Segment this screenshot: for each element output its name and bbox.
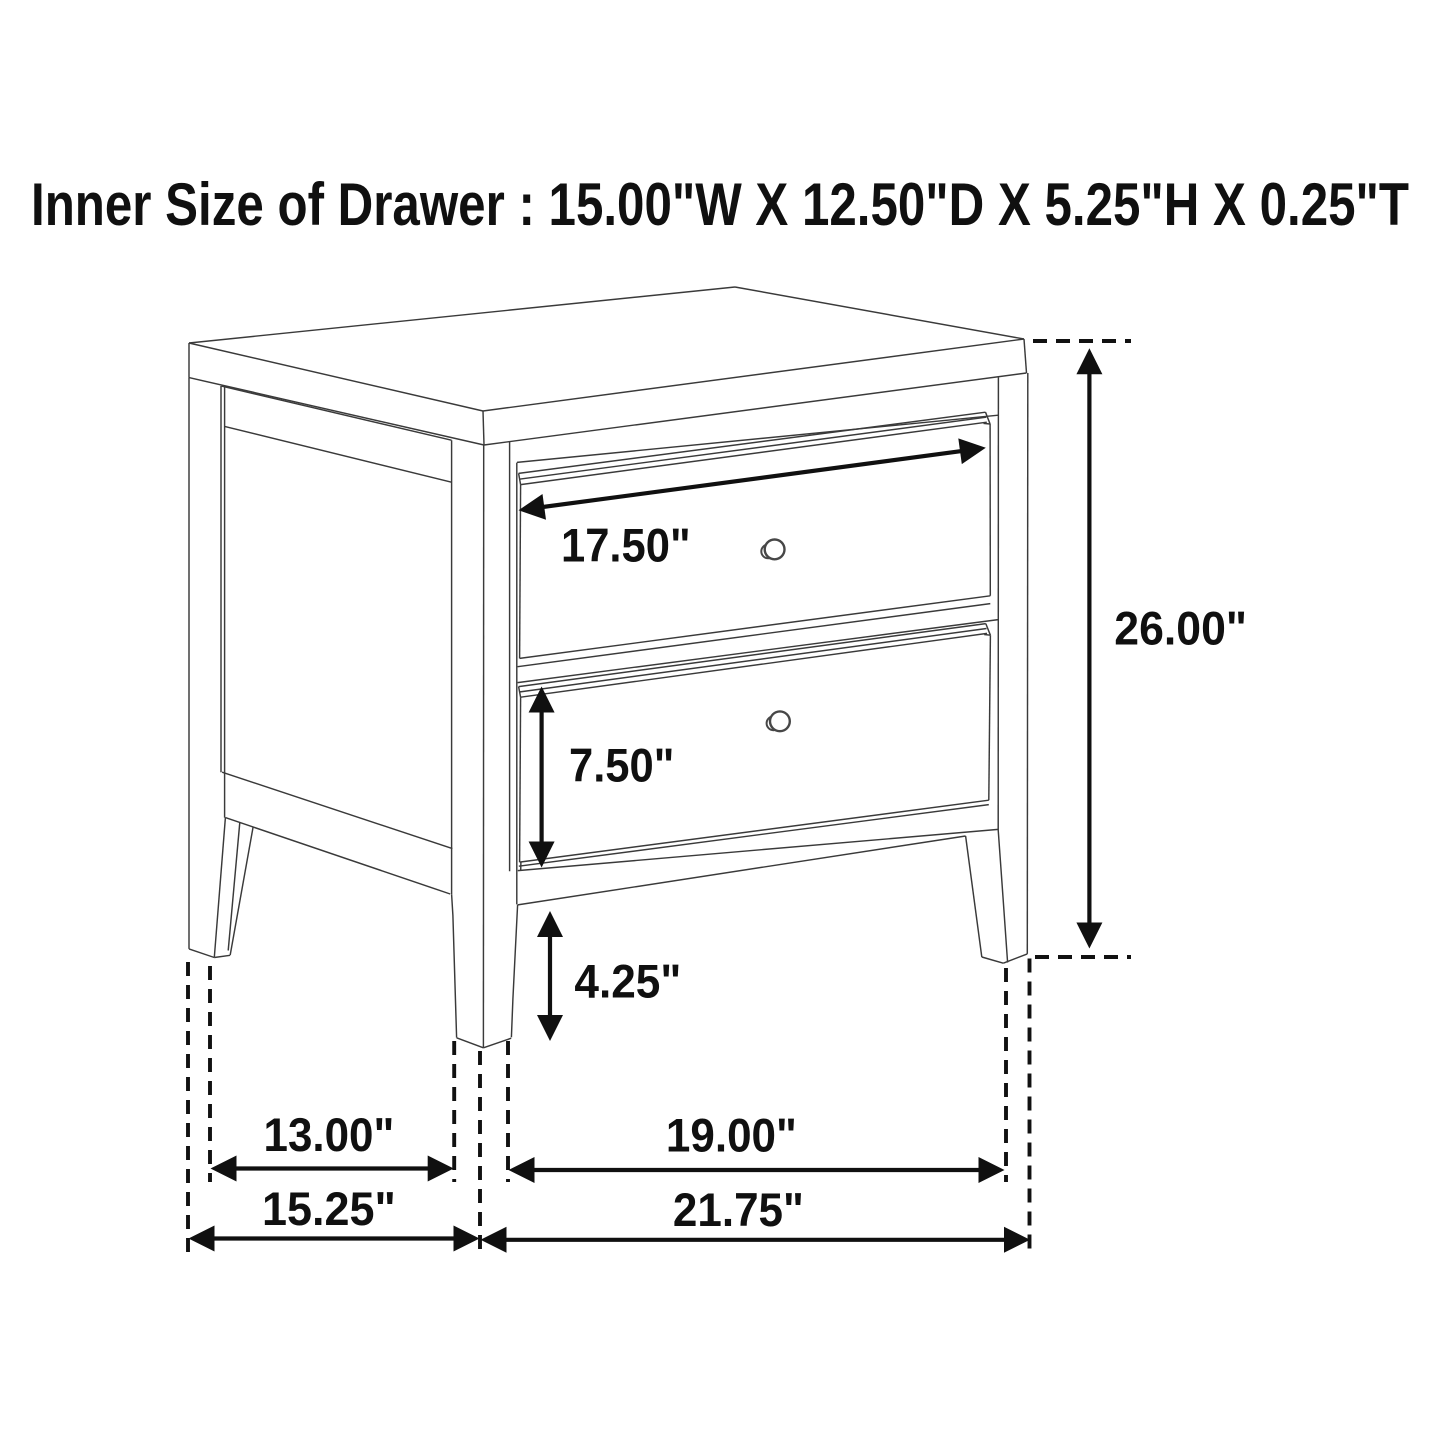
svg-text:26.00": 26.00"	[1114, 603, 1247, 656]
svg-text:19.00": 19.00"	[666, 1110, 797, 1163]
svg-text:21.75": 21.75"	[673, 1184, 804, 1237]
svg-text:7.50": 7.50"	[569, 740, 674, 793]
svg-text:4.25": 4.25"	[574, 956, 681, 1009]
svg-text:15.25": 15.25"	[262, 1183, 396, 1236]
svg-text:13.00": 13.00"	[264, 1109, 395, 1162]
svg-text:17.50": 17.50"	[561, 520, 691, 573]
svg-text:Inner Size of Drawer : 15.00"W: Inner Size of Drawer : 15.00"W X 12.50"D…	[31, 171, 1409, 238]
